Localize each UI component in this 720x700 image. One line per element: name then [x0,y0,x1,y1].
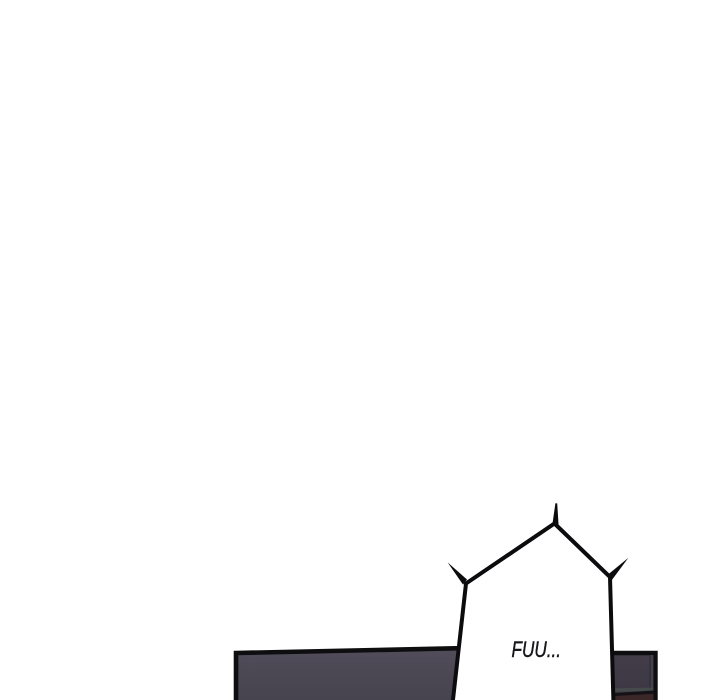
svg-text:FUU...: FUU... [512,637,562,662]
